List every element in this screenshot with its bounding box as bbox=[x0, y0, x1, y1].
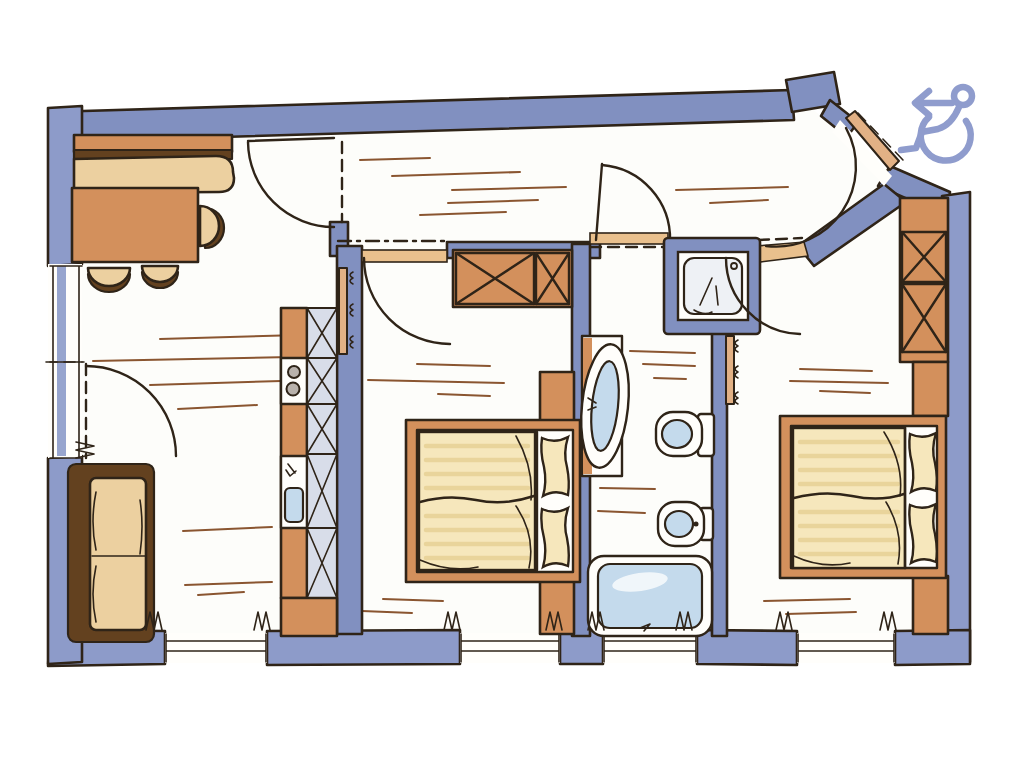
bedroom2-nightstand-bottom bbox=[913, 576, 948, 634]
kitchen-counter bbox=[281, 308, 307, 598]
sofa bbox=[68, 464, 154, 642]
kitchen-base-block bbox=[281, 598, 337, 636]
bed1-pillow-2 bbox=[541, 508, 568, 567]
wheelchair-accessible-icon bbox=[901, 87, 972, 161]
stove bbox=[281, 358, 307, 404]
bathroom-wall-hooks bbox=[726, 336, 738, 404]
bedroom1-bed bbox=[406, 420, 580, 582]
bathroom-threshold bbox=[590, 233, 668, 244]
bedroom1-wardrobe bbox=[453, 250, 572, 307]
bedroom1-nightstand-top bbox=[540, 372, 574, 424]
corner-bench bbox=[74, 135, 234, 193]
bathtub bbox=[588, 556, 712, 636]
window-bedroom1 bbox=[460, 633, 560, 663]
toilet bbox=[656, 412, 714, 456]
window-living bbox=[165, 633, 267, 663]
bidet bbox=[658, 502, 713, 546]
wheelchair-icon-head bbox=[954, 87, 972, 105]
kitchen-cabinets bbox=[307, 308, 337, 598]
bedroom2-bed bbox=[780, 416, 946, 578]
bedroom2-wardrobe bbox=[900, 198, 948, 362]
wheelchair-icon-left-arrow bbox=[915, 91, 952, 115]
window-bedroom2 bbox=[797, 633, 895, 663]
bathroom-right-wall bbox=[712, 326, 727, 636]
kitchen-sink bbox=[281, 456, 307, 528]
bed2-pillow-1 bbox=[909, 433, 936, 492]
shower bbox=[664, 238, 760, 334]
bedroom1-threshold bbox=[362, 250, 447, 262]
floor-plan-image bbox=[0, 0, 1024, 768]
window-bathroom bbox=[603, 633, 697, 663]
kitchen bbox=[281, 308, 337, 636]
bed2-pillow-2 bbox=[909, 504, 936, 563]
bed1-pillow-1 bbox=[541, 437, 568, 496]
bedroom2-nightstand-top bbox=[913, 362, 948, 416]
floor-plan bbox=[0, 0, 1024, 768]
bedroom1-nightstand-bottom bbox=[540, 576, 574, 634]
dining-table bbox=[72, 188, 198, 262]
